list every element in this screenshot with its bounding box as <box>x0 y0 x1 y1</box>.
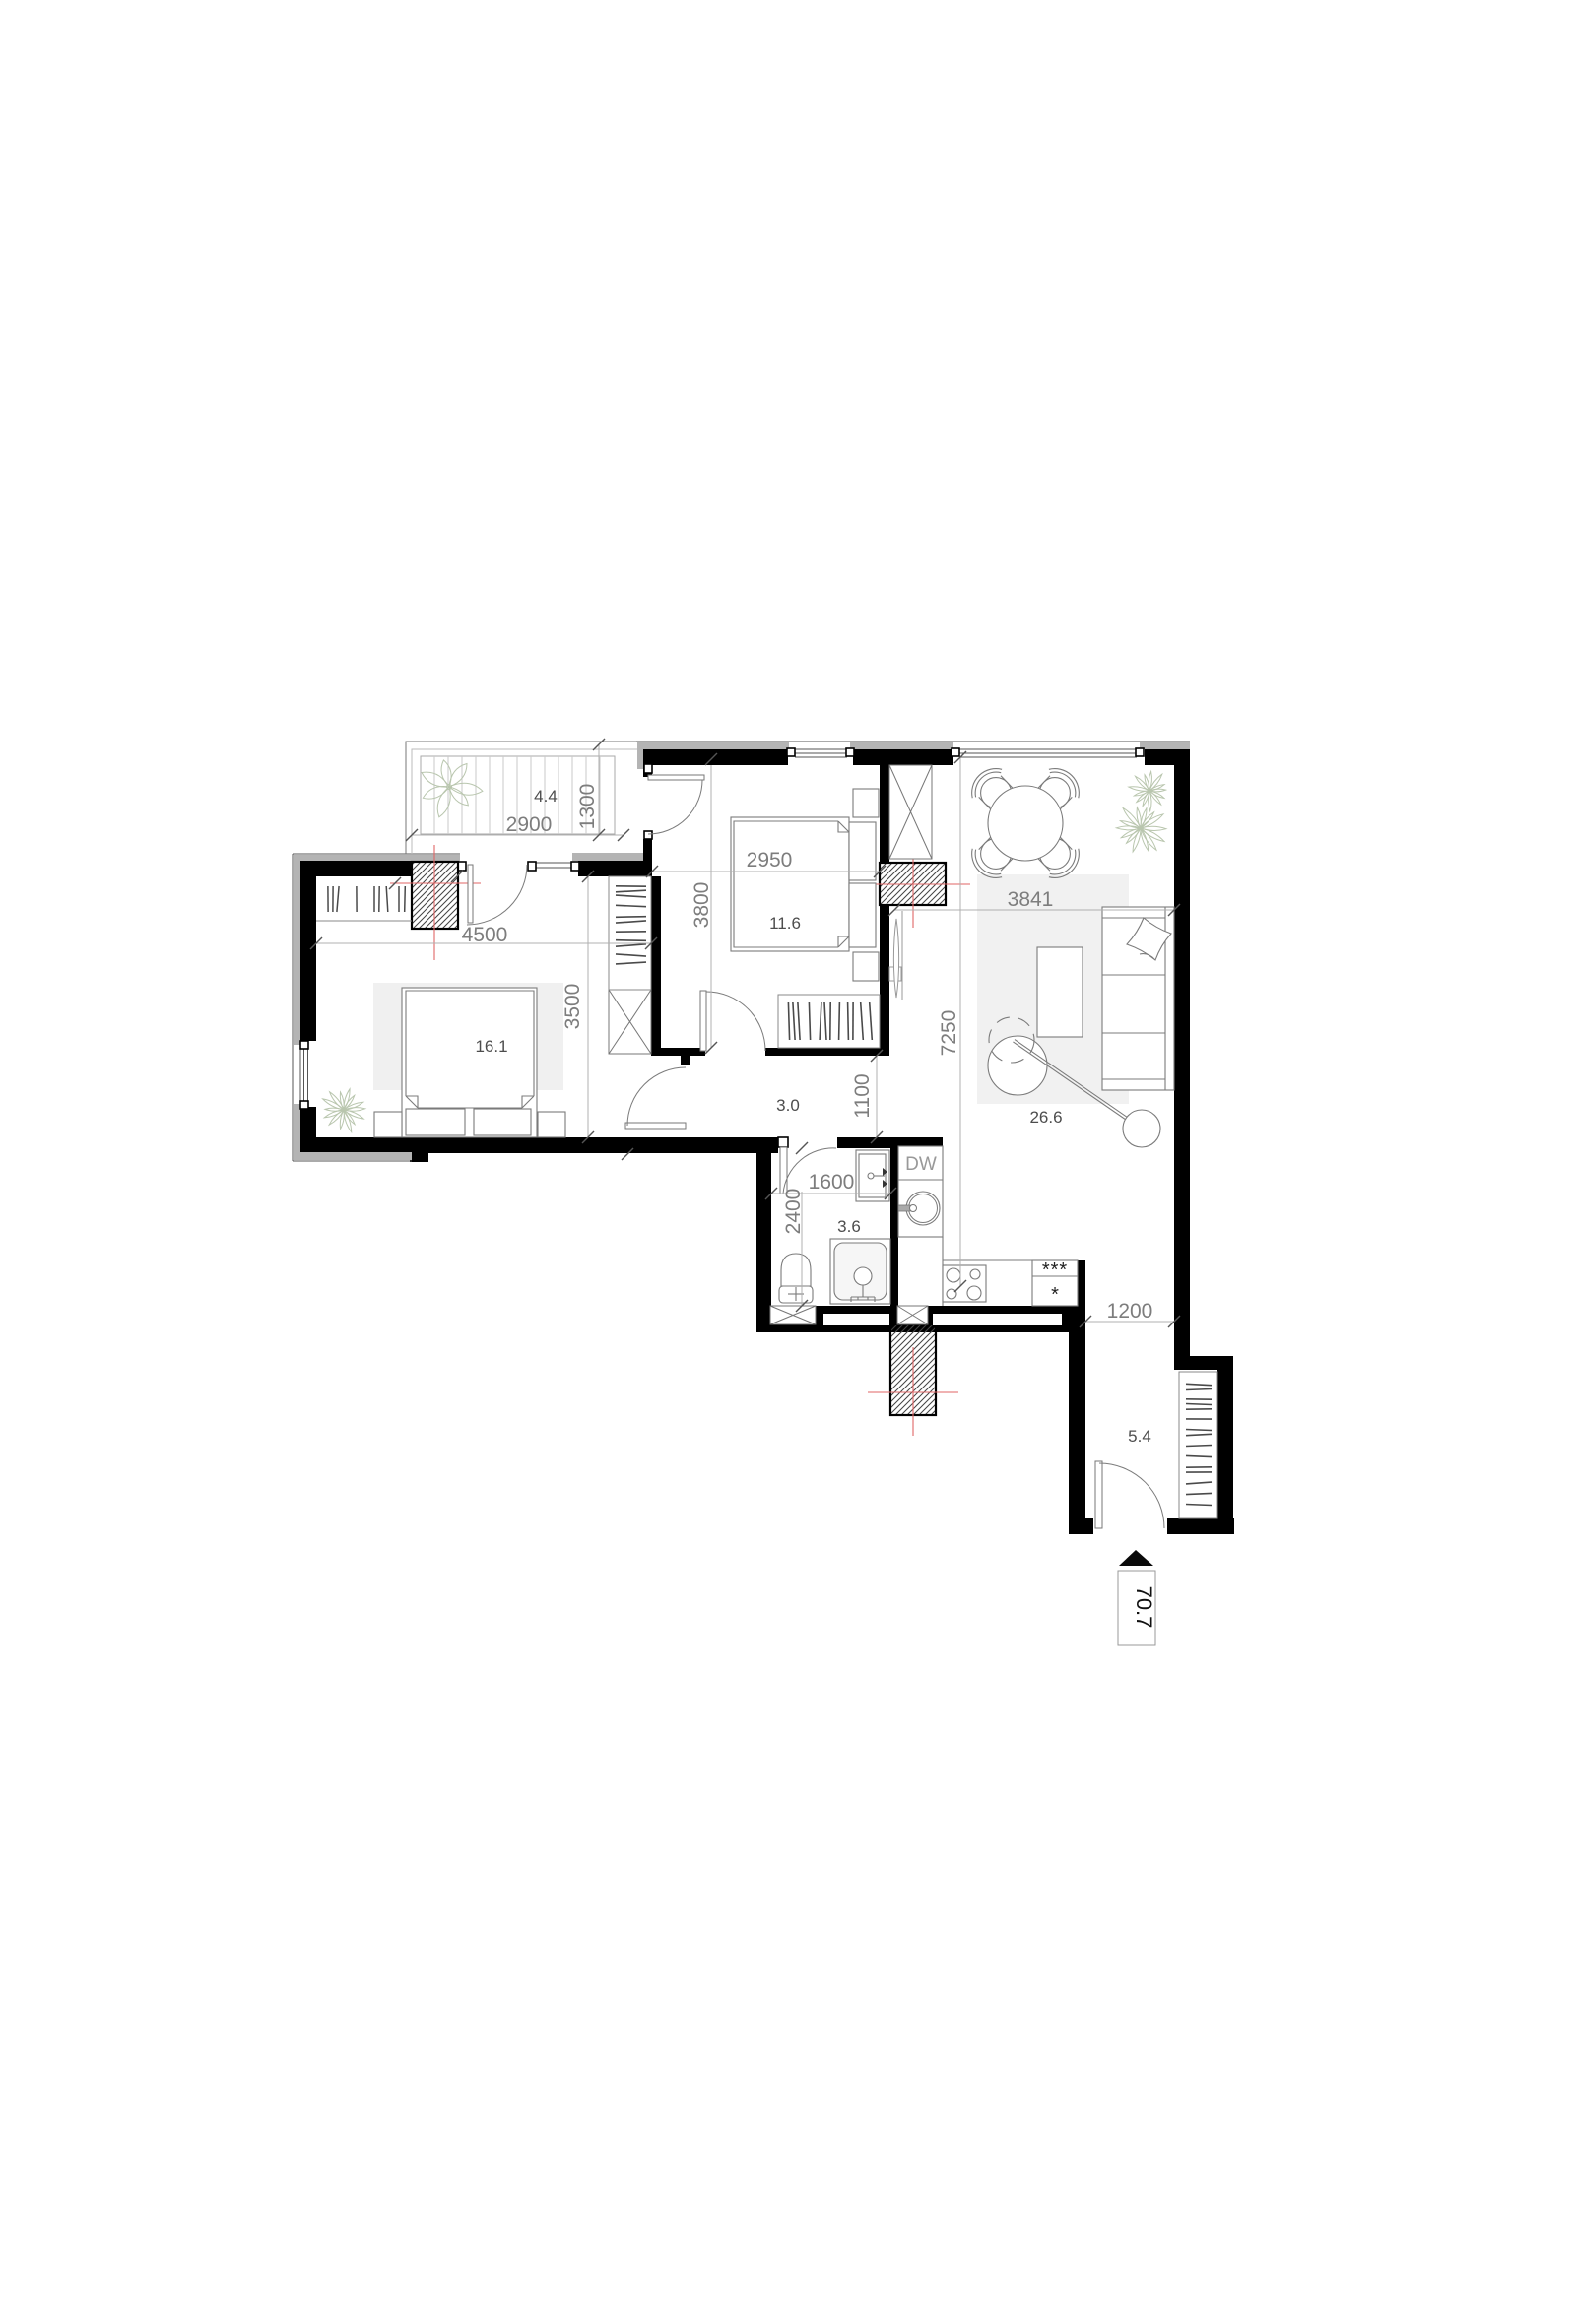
svg-text:11.6: 11.6 <box>769 914 801 933</box>
svg-text:26.6: 26.6 <box>1029 1108 1062 1127</box>
svg-text:3.0: 3.0 <box>776 1096 800 1115</box>
svg-text:1200: 1200 <box>1107 1300 1153 1323</box>
svg-text:1100: 1100 <box>851 1073 874 1118</box>
svg-text:2900: 2900 <box>506 813 553 836</box>
svg-text:1600: 1600 <box>809 1171 855 1194</box>
svg-text:3841: 3841 <box>1008 888 1054 911</box>
svg-text:***: *** <box>1042 1259 1068 1281</box>
svg-text:70.7: 70.7 <box>1132 1586 1156 1629</box>
svg-text:2950: 2950 <box>747 849 793 871</box>
svg-text:3.6: 3.6 <box>837 1217 861 1236</box>
svg-text:3800: 3800 <box>690 882 713 929</box>
svg-text:7250: 7250 <box>938 1010 960 1057</box>
svg-text:3500: 3500 <box>561 984 584 1030</box>
svg-text:4500: 4500 <box>462 924 508 946</box>
svg-text:*: * <box>1051 1284 1059 1306</box>
svg-text:DW: DW <box>905 1154 937 1175</box>
svg-text:1300: 1300 <box>576 784 599 830</box>
svg-text:2400: 2400 <box>782 1189 805 1235</box>
svg-text:4.4: 4.4 <box>534 787 558 806</box>
svg-text:16.1: 16.1 <box>475 1037 507 1056</box>
svg-text:5.4: 5.4 <box>1128 1427 1151 1446</box>
